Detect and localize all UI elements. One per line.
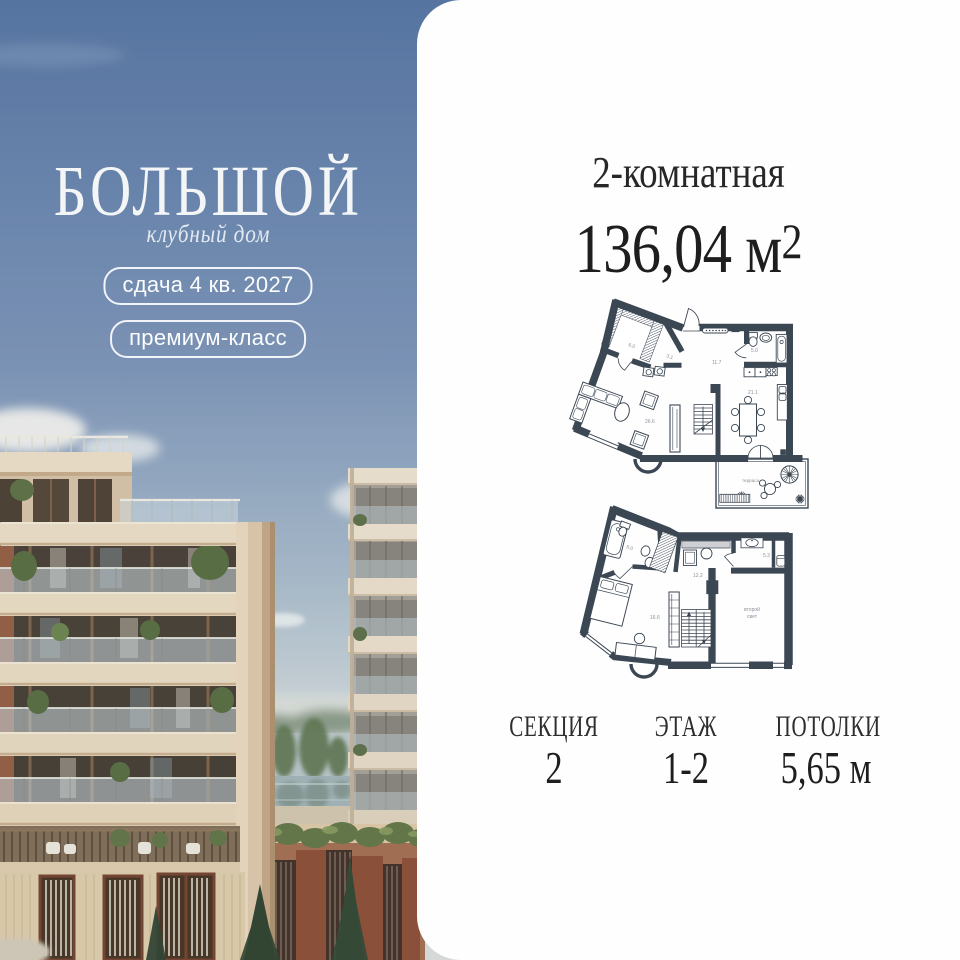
svg-text:21.1: 21.1	[748, 390, 758, 396]
svg-text:26.6: 26.6	[645, 419, 655, 425]
svg-text:терраса: терраса	[742, 478, 760, 483]
svg-text:16.6: 16.6	[650, 615, 660, 621]
svg-text:11.7: 11.7	[712, 360, 722, 366]
svg-text:12.2: 12.2	[693, 573, 703, 579]
svg-text:3.1: 3.1	[665, 353, 674, 361]
svg-text:5.0: 5.0	[751, 348, 758, 354]
svg-text:свет: свет	[747, 614, 758, 620]
svg-text:второй: второй	[744, 606, 760, 613]
svg-text:5.3: 5.3	[763, 553, 770, 559]
svg-text:6.0: 6.0	[625, 544, 634, 552]
